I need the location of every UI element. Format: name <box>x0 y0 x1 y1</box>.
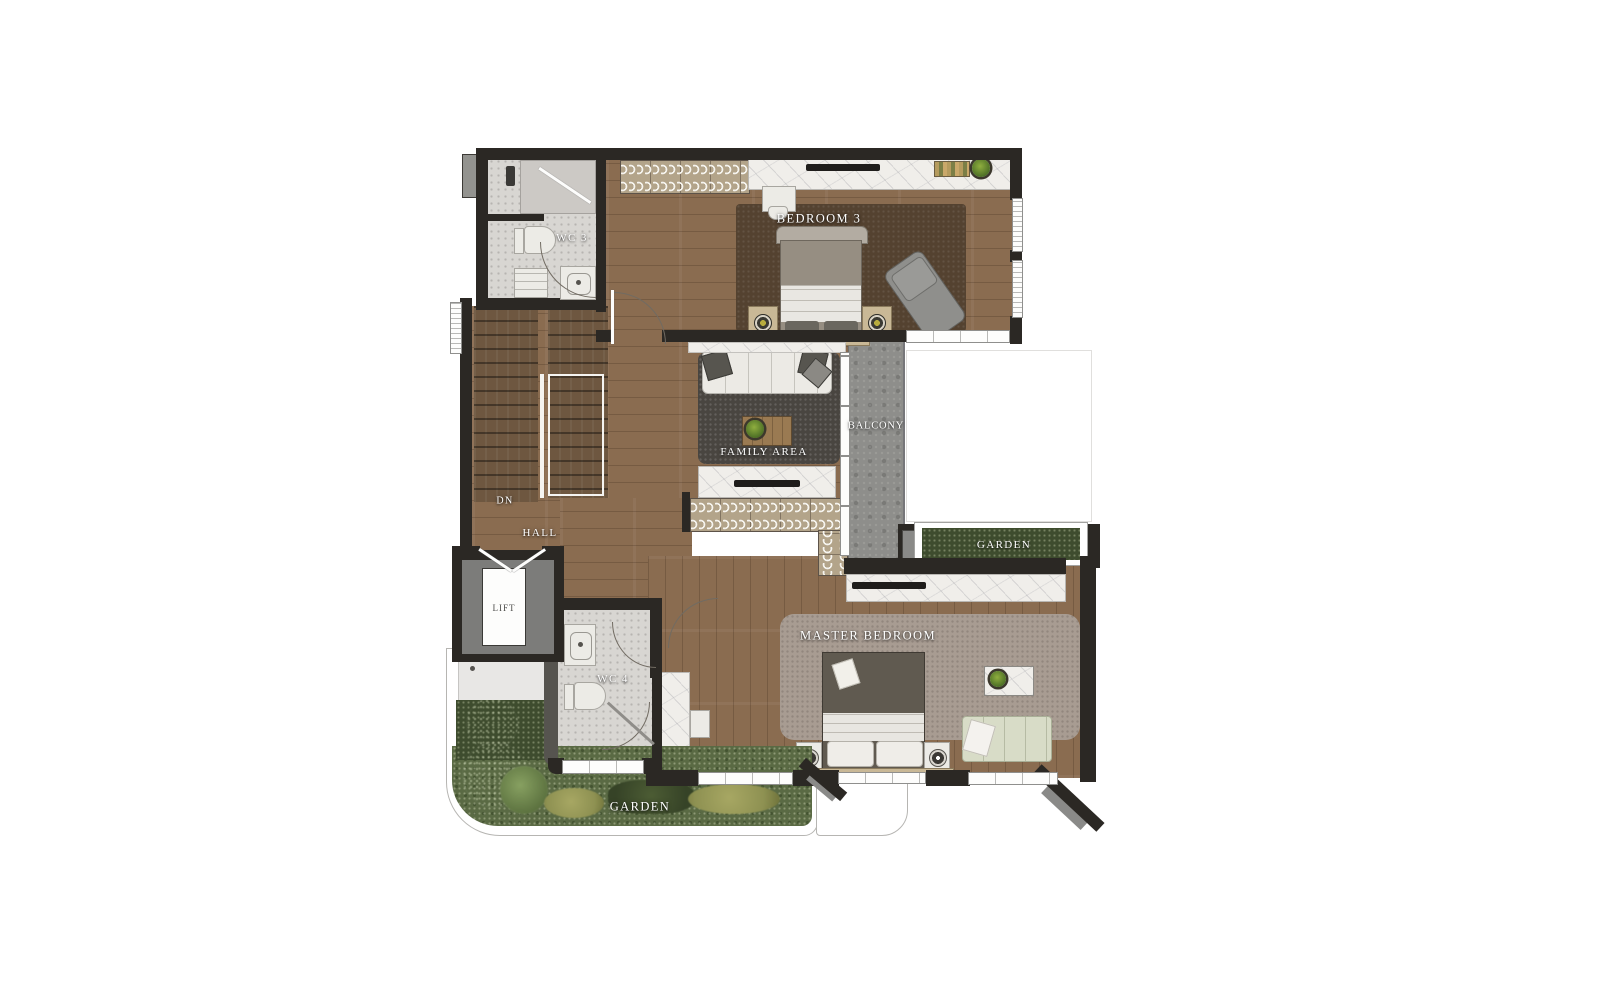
label-family-area: FAMILY AREA <box>720 446 807 458</box>
wall-wc4-top <box>548 598 660 610</box>
wall-wc4-bottom-stub-right <box>642 758 660 774</box>
wall-bedroom3-bottom <box>662 330 906 342</box>
wc4-vanity <box>564 624 596 666</box>
wc3-toilet-tank <box>514 228 524 254</box>
label-garden-bottom: GARDEN <box>610 800 670 815</box>
bedroom3-bed-duvet <box>781 285 861 322</box>
window-bedroom3-bottom <box>906 330 1010 343</box>
window-hall-left <box>450 302 462 354</box>
wc4-toilet-tank <box>564 684 574 710</box>
label-hall: HALL <box>523 527 558 539</box>
bedroom3-books <box>934 161 970 177</box>
label-garden-right: GARDEN <box>977 539 1031 551</box>
garden-bush-yellow-2 <box>688 784 780 814</box>
paving-drain-dot <box>470 666 475 671</box>
wall-closet-left <box>682 492 690 532</box>
label-wc3: WC 3 <box>556 232 588 244</box>
master-bed <box>822 652 925 770</box>
master-side-table <box>690 710 710 738</box>
family-tv <box>734 480 800 487</box>
wall-wc3-left <box>476 148 488 306</box>
wc3-shower-area <box>520 160 596 214</box>
floor-plan: BEDROOM 3 WC 3 FAMILY AREA BALCONY GARDE… <box>0 0 1600 1000</box>
master-table-plant <box>990 671 1006 687</box>
wc3-shower-head <box>506 166 515 186</box>
window-master-bottom-mid <box>838 772 926 784</box>
wall-bedroom3-right-upper <box>1010 148 1022 200</box>
garden-bush-light <box>500 766 548 814</box>
wall-wc3-right <box>596 150 606 312</box>
window-bedroom3-right-2 <box>1012 260 1023 318</box>
stairs-railing <box>548 374 604 496</box>
wall-master-right <box>1080 556 1096 782</box>
balcony-floor <box>848 342 905 560</box>
stairs-stringer <box>540 374 544 498</box>
master-bed-throw <box>832 658 861 690</box>
garden-bush-yellow-1 <box>544 788 604 818</box>
balcony-side-terrace <box>906 350 1092 522</box>
master-speaker-right <box>929 749 947 767</box>
master-tv <box>852 582 926 589</box>
garden-tree-upper <box>466 698 518 750</box>
label-master-bedroom: MASTER BEDROOM <box>800 629 936 644</box>
wall-master-top <box>844 558 1066 574</box>
wc4-faucet <box>578 642 583 647</box>
wall-bedroom3-bottom-stub <box>596 330 612 342</box>
stairs-flight-left <box>474 306 538 502</box>
bedroom3-plant <box>972 159 990 177</box>
label-bedroom3: BEDROOM 3 <box>777 212 861 227</box>
wall-bedroom3-right-lower <box>1010 316 1022 344</box>
label-balcony: BALCONY <box>848 421 904 432</box>
wall-wc3-divider <box>488 214 544 221</box>
master-pillow-right <box>876 741 923 767</box>
wc3-bench <box>514 268 548 298</box>
label-wc4: WC 4 <box>597 673 629 685</box>
label-lift: LIFT <box>493 603 516 613</box>
wall-top <box>476 148 1022 160</box>
window-master-bottom-right <box>968 772 1058 785</box>
master-pillow-left <box>827 741 874 767</box>
window-bedroom3-right-1 <box>1012 198 1023 252</box>
balcony-sliding-glass <box>840 352 850 556</box>
window-wc4-bottom <box>562 760 644 774</box>
master-bed-sheet <box>823 713 924 741</box>
label-dn: DN <box>496 496 513 507</box>
family-table-plant <box>746 420 764 438</box>
bedroom3-wardrobe <box>620 160 750 194</box>
window-master-bottom-left <box>698 772 793 785</box>
wall-master-bottom-brace-block-right <box>926 770 970 786</box>
family-back-ledge <box>688 342 846 353</box>
bedroom3-bed <box>780 240 862 337</box>
bedroom3-tv <box>806 164 880 171</box>
master-closet-top <box>690 498 848 532</box>
